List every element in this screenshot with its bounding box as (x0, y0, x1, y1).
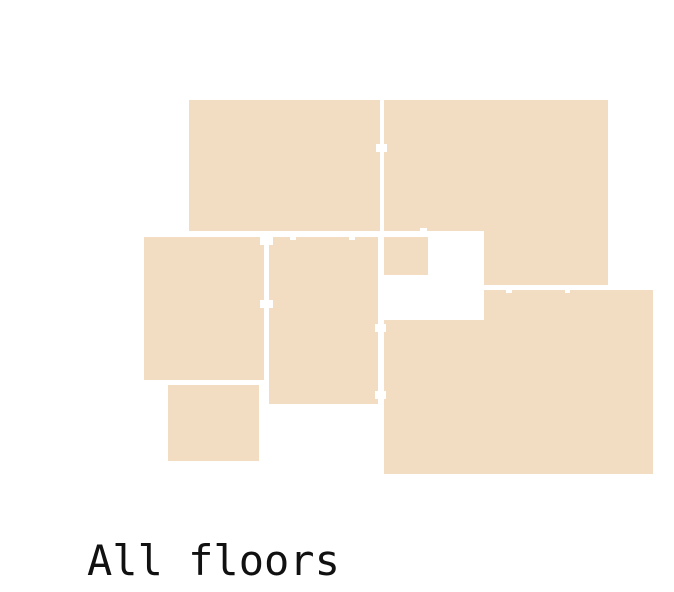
door-topleft-center-2 (349, 231, 355, 240)
door-topright-bottomright-2 (565, 285, 570, 293)
door-center-bottomright-bottom (375, 391, 386, 399)
floor-caption: All floors (87, 540, 340, 582)
door-topright-closet (420, 228, 427, 237)
door-topright-bottomright-1 (506, 285, 512, 293)
floorplan-view: All floors (0, 0, 674, 592)
door-center-bottomright-top (375, 324, 386, 332)
room-left-middle (144, 237, 264, 380)
room-top-right-main (384, 100, 608, 231)
room-closet (384, 237, 428, 275)
door-topleft-center-1 (290, 231, 296, 240)
door-leftmiddle-center-top (260, 237, 273, 245)
room-top-left (189, 100, 380, 231)
room-bottom-right-upper (484, 290, 653, 474)
room-center (269, 237, 378, 404)
door-topleft-topright (376, 144, 387, 152)
door-leftmiddle-center-bottom (260, 300, 273, 308)
room-top-right-extension (484, 231, 608, 285)
room-bottom-right-left (384, 320, 484, 474)
room-small-bottom (168, 385, 259, 461)
